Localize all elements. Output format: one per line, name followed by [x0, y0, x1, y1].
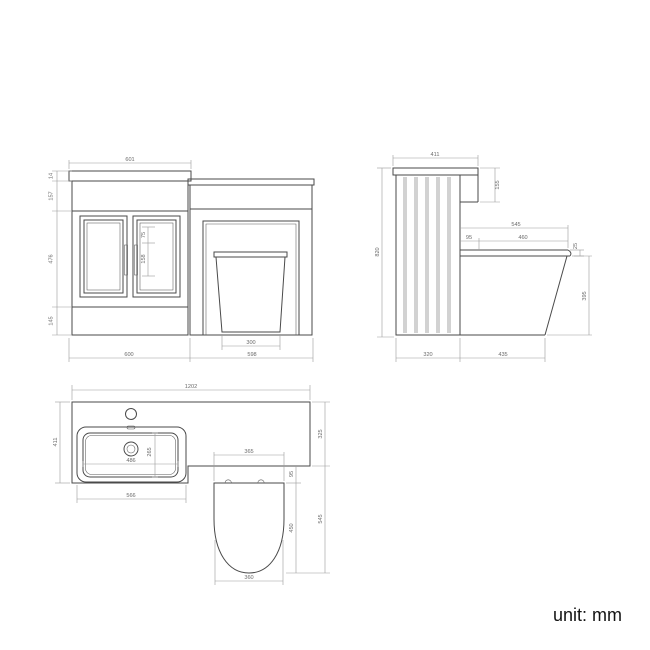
- dim-seat-length-side: 460: [518, 235, 527, 241]
- wc-unit-front-outline: [188, 179, 314, 335]
- waste-outer: [124, 442, 138, 456]
- worktop-plan-outline: [72, 402, 310, 483]
- dim-total-height: 820: [375, 247, 381, 256]
- dim-seat-width-bottom: 360: [244, 575, 253, 581]
- toilet-pan-side-front: [545, 256, 567, 335]
- dim-seat-width-top: 365: [244, 449, 253, 455]
- side-elevation-view: 411 155 820 545 95 460 25 395 320 435: [375, 152, 592, 362]
- plan-dimension-lines: [55, 385, 330, 585]
- toilet-seat-front: [214, 252, 287, 257]
- vanity-front-outline: [69, 171, 191, 335]
- dim-worktop-depth: 325: [318, 429, 324, 438]
- technical-drawing-page: 601 14 157 476 145 600 598 300 75 158: [0, 0, 650, 650]
- plan-view: 1202 411 325 545 95 450 486 265 566 365 …: [53, 384, 330, 585]
- dim-basin-inner-width: 486: [126, 458, 135, 464]
- dim-front-width-top: 601: [125, 157, 134, 163]
- side-dimension-labels: 411 155 820 545 95 460 25 395 320 435: [375, 152, 588, 358]
- dim-total-width: 1202: [185, 384, 197, 390]
- dim-seat-hinge-offset: 95: [289, 471, 295, 477]
- cistern-slats: [404, 177, 450, 333]
- dim-upper-band-height: 157: [49, 191, 55, 200]
- dim-basin-outer-width: 566: [126, 493, 135, 499]
- dim-top-depth: 411: [431, 152, 440, 158]
- dim-side-panel-drop: 155: [495, 180, 501, 189]
- side-dimension-lines: [377, 155, 592, 362]
- dim-pan-base-width: 300: [246, 340, 255, 346]
- dim-basin-inner-depth: 265: [147, 447, 153, 456]
- wc-unit-outline: [190, 185, 312, 335]
- toilet-pan-front: [216, 257, 285, 332]
- dim-seat-thickness: 25: [573, 243, 579, 249]
- vanity-unit-drawing: 601 14 157 476 145 600 598 300 75 158: [0, 0, 650, 650]
- dim-door-height: 476: [49, 254, 55, 263]
- dim-pan-height: 395: [582, 291, 588, 300]
- dim-handle-length: 158: [141, 254, 147, 263]
- side-worktop: [393, 168, 478, 175]
- vanity-cabinet-outline: [72, 181, 188, 335]
- dim-seat-overall-depth: 545: [511, 222, 520, 228]
- plan-outline: [72, 402, 310, 573]
- dim-wc-section-depth: 545: [318, 514, 324, 523]
- dim-vanity-depth: 411: [53, 438, 59, 447]
- waste-inner: [127, 445, 135, 453]
- basin-inner: [83, 433, 178, 477]
- dim-cistern-depth: 320: [423, 352, 432, 358]
- dim-handle-offset: 75: [141, 232, 147, 238]
- front-elevation-view: 601 14 157 476 145 600 598 300 75 158: [49, 157, 315, 362]
- toilet-seat-plan: [214, 483, 284, 573]
- dim-vanity-width: 600: [124, 352, 133, 358]
- unit-label: unit: mm: [553, 605, 622, 625]
- tap-hole: [126, 409, 137, 420]
- dim-worktop-thickness: 14: [49, 173, 55, 179]
- dim-seat-back-gap: 95: [466, 235, 472, 241]
- dim-plinth-height: 145: [49, 316, 55, 325]
- side-outline: [393, 168, 571, 335]
- dim-wc-width: 598: [247, 352, 256, 358]
- dim-pan-projection: 435: [498, 352, 507, 358]
- dim-seat-length-plan: 450: [289, 523, 295, 532]
- wc-worktop: [188, 179, 314, 185]
- vanity-worktop: [69, 171, 191, 181]
